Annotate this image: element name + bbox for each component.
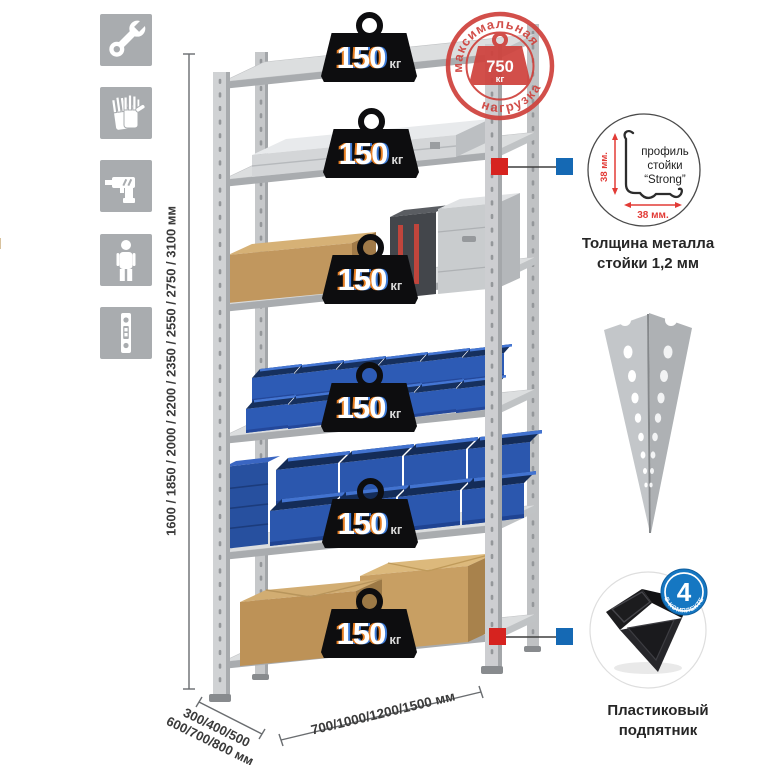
angle-post-image (604, 313, 692, 533)
height-dimension-label: 1600 / 1850 / 2000 / 2200 / 2350 / 2550 … (164, 206, 179, 536)
foot-caption-line2: подпятник (594, 721, 722, 741)
profile-caption-line2: стойки 1,2 мм (578, 254, 718, 274)
weight-value: 150 (337, 616, 386, 652)
quantity-badge: 4 в комплекте (661, 569, 707, 615)
svg-text:“Strong”: “Strong” (644, 174, 686, 186)
foot-caption-line1: Пластиковый (594, 701, 722, 721)
shelf-weight-badge-6: 150кг (321, 588, 417, 658)
weight-value: 150 (338, 506, 387, 542)
weight-unit: кг (389, 406, 401, 421)
profile-detail-circle: 38 мм. 38 мм. профиль стойки “Strong” (582, 110, 706, 234)
silver-case (438, 193, 520, 294)
shelf-weight-badge-4: 150кг (321, 362, 417, 432)
profile-caption: Толщина металла стойки 1,2 мм (578, 234, 718, 273)
quantity-badge-value: 4 (677, 577, 692, 607)
rack-shelves (0, 34, 542, 669)
shelf-weight-badge-1: 150кг (321, 12, 417, 82)
product-infographic: 4 в комплекте 38 мм. 38 мм. профиль стой… (0, 0, 765, 765)
height-dimension-line (183, 54, 195, 689)
profile-label: профиль стойки “Strong” (641, 146, 689, 186)
weight-unit: кг (390, 278, 402, 293)
stamp-weight-icon: 750 кг (470, 34, 530, 85)
weight-value: 150 (338, 262, 387, 298)
cardboard-box-flat (0, 232, 376, 303)
profile-caption-line1: Толщина металла (578, 234, 718, 254)
shelf-weight-badge-5: 150кг (322, 478, 418, 548)
weight-value: 150 (337, 40, 386, 76)
svg-text:стойки: стойки (647, 160, 682, 172)
weight-unit: кг (389, 56, 401, 71)
svg-text:профиль: профиль (641, 146, 689, 158)
foot-caption: Пластиковый подпятник (594, 701, 722, 740)
stamp-weight-unit: кг (496, 74, 505, 85)
weight-value: 150 (337, 390, 386, 426)
profile-vertical-dim: 38 мм. (599, 152, 610, 182)
shelf-weight-badge-3: 150кг (322, 234, 418, 304)
max-load-stamp: максимальная нагрузка 750 кг (440, 6, 560, 126)
weight-unit: кг (389, 632, 401, 647)
profile-horizontal-dim: 38 мм. (637, 210, 669, 221)
weight-unit: кг (391, 152, 403, 167)
weight-unit: кг (390, 522, 402, 537)
weight-value: 150 (339, 136, 388, 172)
shelf-weight-badge-2: 150кг (323, 108, 419, 178)
